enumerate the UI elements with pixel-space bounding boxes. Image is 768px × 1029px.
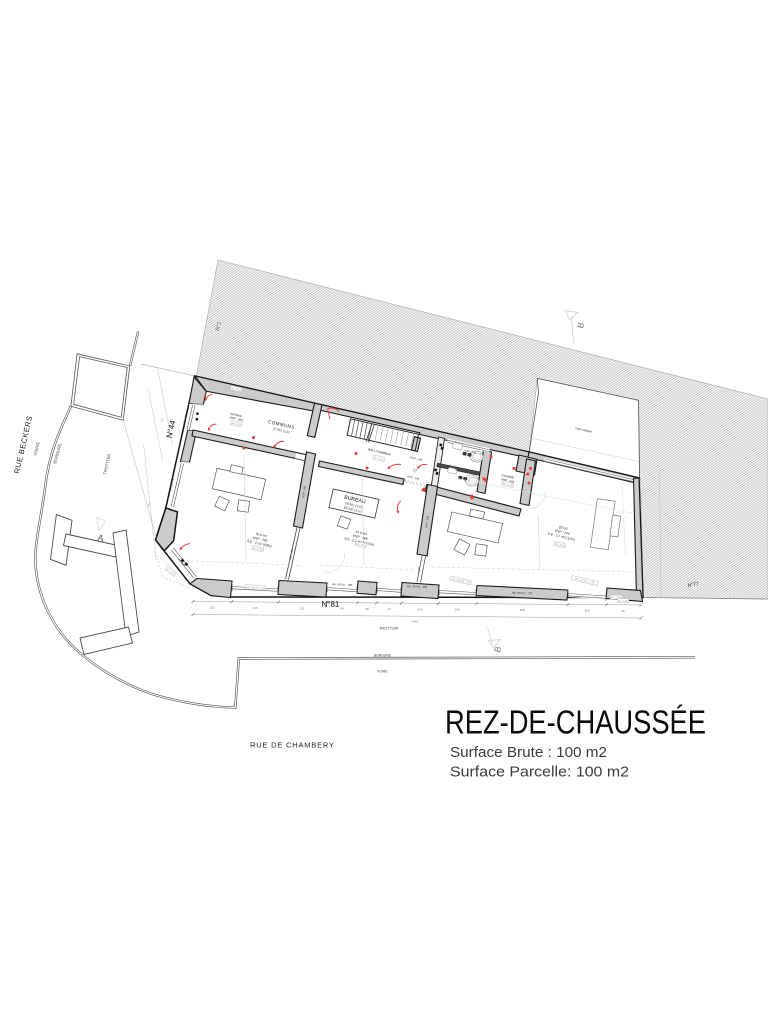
svg-text:RUE DE CHAMBERY: RUE DE CHAMBERY	[250, 741, 335, 750]
svg-text:HA : 60 H/L : 200: HA : 60 H/L : 200	[407, 584, 428, 589]
svg-text:96: 96	[621, 609, 625, 613]
svg-text:TROTTOIR: TROTTOIR	[379, 627, 399, 631]
svg-text:HA : 60 H/L : 178: HA : 60 H/L : 178	[512, 591, 533, 596]
svg-text:108: 108	[454, 608, 459, 612]
svg-text:Surface Parcelle: 100 m2: Surface Parcelle: 100 m2	[450, 764, 629, 781]
svg-text:84: 84	[340, 607, 344, 611]
svg-text:alt : 0.00: alt : 0.00	[618, 599, 629, 603]
svg-text:BORDURE: BORDURE	[374, 654, 392, 658]
svg-text:Surface Brute : 100 m2: Surface Brute : 100 m2	[450, 744, 607, 761]
svg-text:N°81: N°81	[322, 600, 340, 609]
svg-text:58: 58	[365, 607, 369, 611]
svg-text:REZ-DE-CHAUSSÉE: REZ-DE-CHAUSSÉE	[445, 705, 706, 742]
svg-text:110: 110	[585, 609, 590, 613]
svg-text:72: 72	[387, 607, 391, 611]
svg-text:1461: 1461	[412, 620, 419, 624]
svg-text:136: 136	[252, 606, 257, 610]
svg-text:358: 358	[519, 608, 524, 612]
svg-text:HA : 60 H/L : 200: HA : 60 H/L : 200	[332, 582, 353, 587]
svg-text:150: 150	[209, 606, 214, 610]
svg-text:HA : 60 H/L : 90: HA : 60 H/L : 90	[246, 585, 265, 590]
svg-text:111: 111	[300, 606, 305, 610]
svg-text:114: 114	[418, 607, 423, 611]
svg-text:VOIRE: VOIRE	[377, 670, 388, 674]
